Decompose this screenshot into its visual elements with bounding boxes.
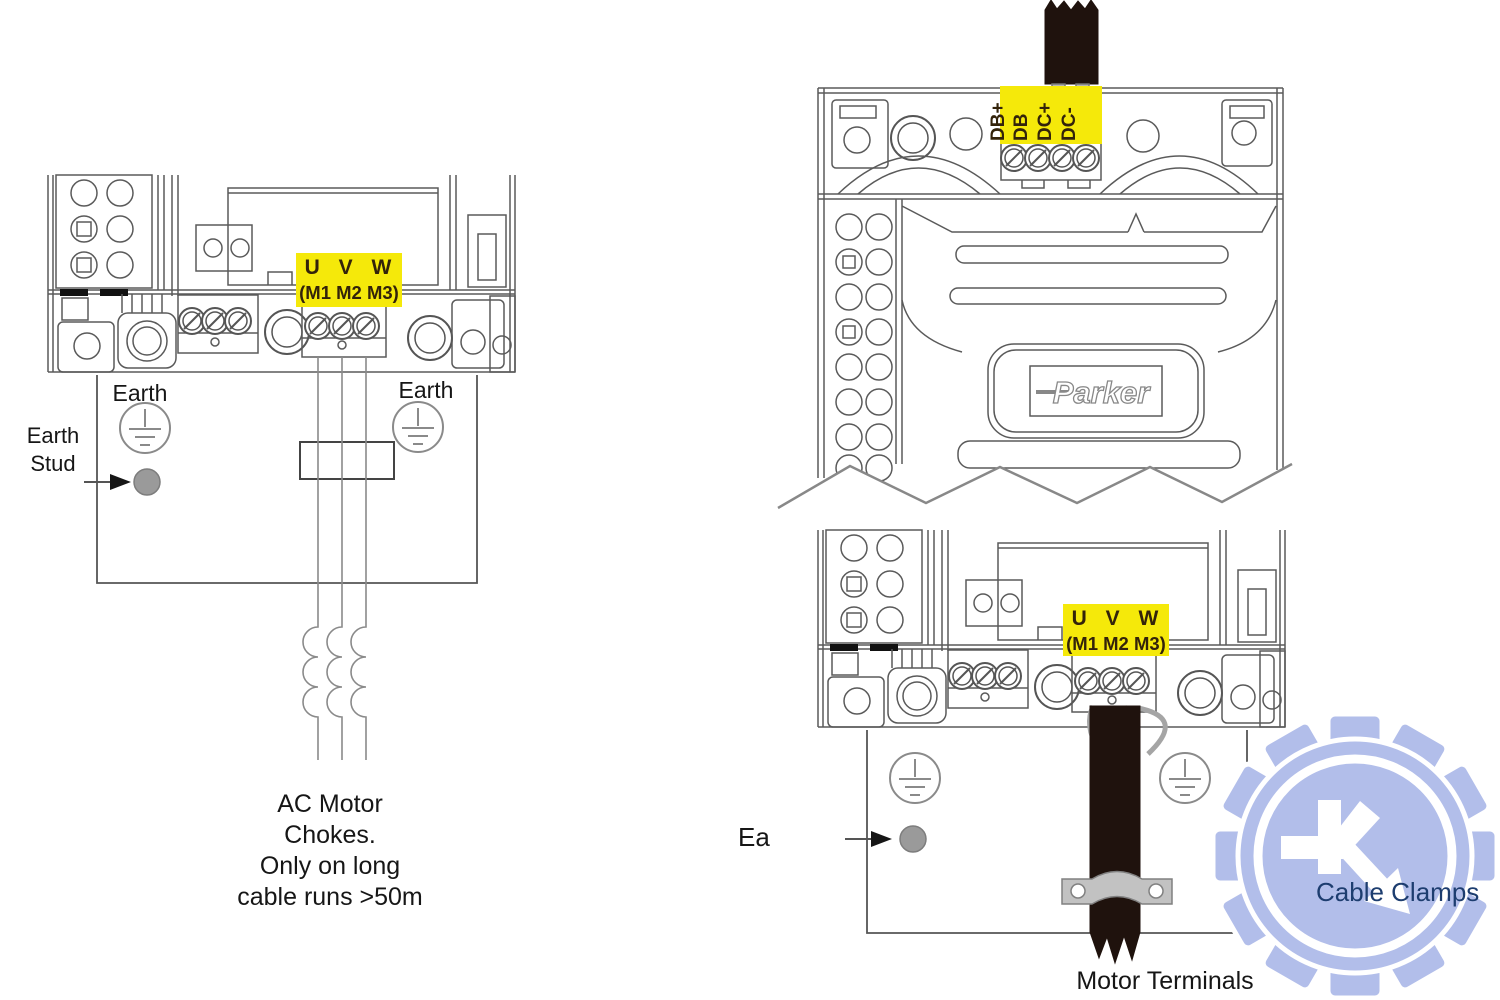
bottom-right-drive-diagram xyxy=(818,530,1285,963)
earth-symbol-left xyxy=(890,753,940,803)
motor-terminal-label-left: U V W (M1 M2 M3) xyxy=(296,253,402,307)
vent-holes xyxy=(836,214,892,481)
earth-stud-dot xyxy=(134,469,160,495)
earth-stud-arrow-icon xyxy=(110,474,131,490)
earth-stud-dot xyxy=(900,826,926,852)
chokes-note: AC Motor Chokes. Only on long cable runs… xyxy=(225,789,435,913)
terminal-label-line1: U V W xyxy=(296,253,402,281)
clamp-hole-left xyxy=(1071,884,1085,898)
chokes-note-line1: AC Motor xyxy=(225,789,435,820)
earth-stud-arrow-icon xyxy=(871,831,892,847)
dc-terminal-label-db-plus: DB+ xyxy=(989,102,1008,141)
wiring-diagram-canvas: Parker xyxy=(0,0,1500,1000)
earth-stud-label-line2: Stud xyxy=(18,450,88,478)
motor-cable xyxy=(1090,706,1140,963)
break-mask xyxy=(778,464,1298,527)
bottom-right-drive-line-art xyxy=(818,530,1285,727)
top-right-drive-line-art: Parker xyxy=(818,88,1283,481)
earth-stud-label-line1: Earth xyxy=(18,422,88,450)
earth-stud-label-ea: Ea xyxy=(738,822,770,853)
left-drive-diagram xyxy=(48,175,515,760)
chokes-note-line2: Chokes. xyxy=(225,820,435,851)
brand-logo-text: Parker xyxy=(1053,375,1151,410)
motor-terminal-label-right: U V W (M1 M2 M3) xyxy=(1063,604,1169,656)
terminal-label-line1: U V W xyxy=(1063,604,1169,632)
dc-terminal-label-dc-plus: DC+ xyxy=(1036,102,1055,141)
earth-label-right: Earth xyxy=(386,377,466,404)
clamp-hole-right xyxy=(1149,884,1163,898)
dc-terminal-label-dc-minus: DC- xyxy=(1060,107,1079,141)
dc-terminal-label: DB+ DB DC+ DC- xyxy=(1000,86,1102,144)
watermark-label: Cable Clamps xyxy=(1316,877,1479,908)
dc-terminal-label-db: DB xyxy=(1012,114,1031,141)
watermark-gear-icon xyxy=(1213,714,1497,998)
earth-label-left: Earth xyxy=(100,380,180,407)
earth-symbol-right xyxy=(1160,753,1210,803)
motor-terminals-caption: Motor Terminals xyxy=(1035,967,1295,996)
left-drive-line-art xyxy=(48,175,515,372)
motor-wires-with-chokes xyxy=(303,357,366,760)
earth-symbol-right xyxy=(393,402,443,452)
chokes-note-line3: Only on long xyxy=(225,851,435,882)
earth-stud-label: Earth Stud xyxy=(18,422,88,478)
terminal-label-line2: (M1 M2 M3) xyxy=(296,281,402,304)
left-cable-clamp-plate xyxy=(300,442,394,479)
chokes-note-line4: cable runs >50m xyxy=(225,882,435,913)
earth-symbol-left xyxy=(120,403,170,453)
terminal-label-line2: (M1 M2 M3) xyxy=(1063,632,1169,655)
